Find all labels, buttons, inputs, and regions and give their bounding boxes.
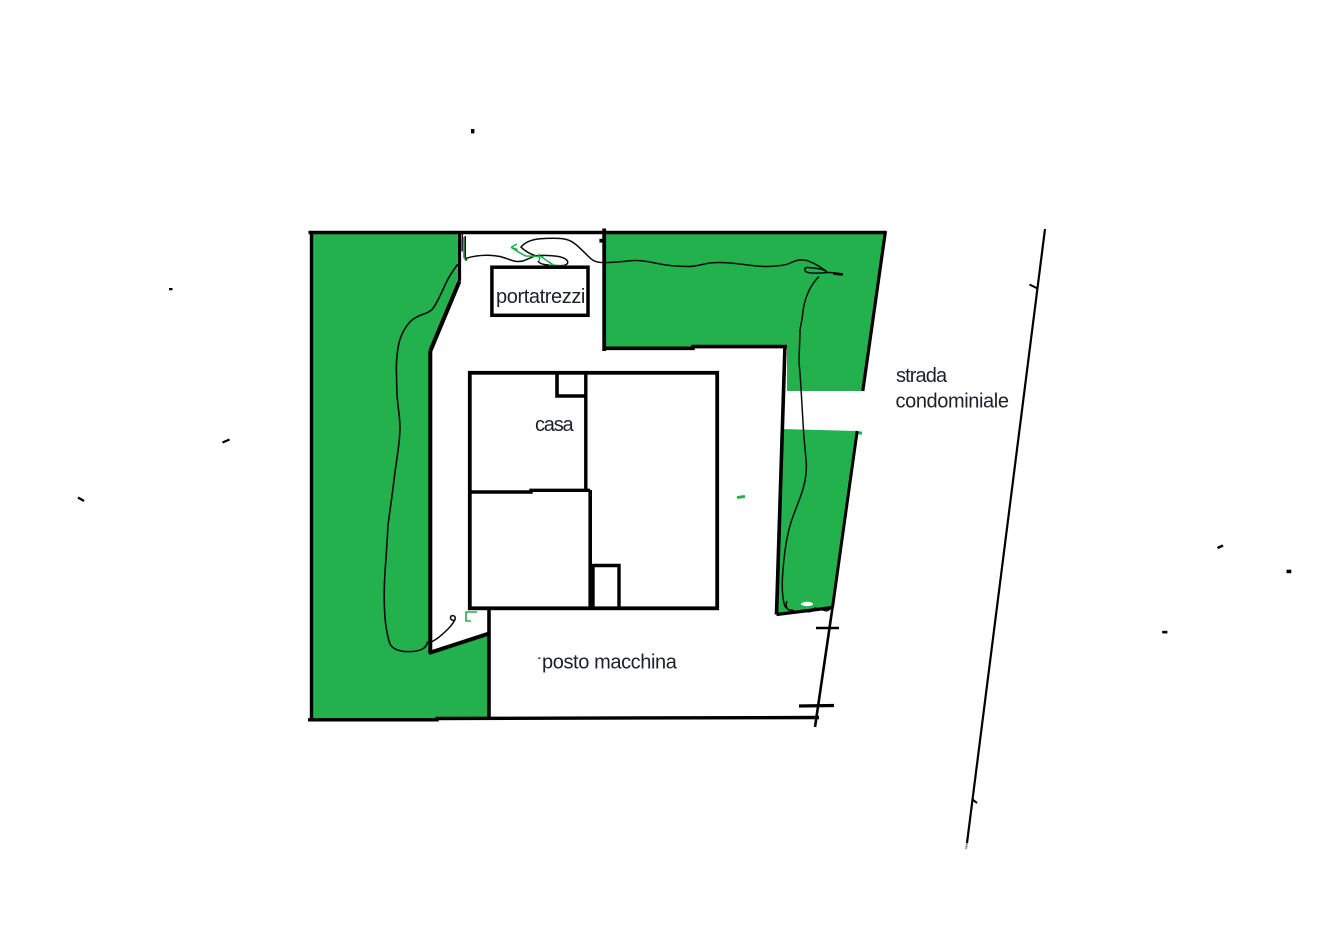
- svg-text:casa: casa: [535, 414, 575, 436]
- svg-text:portatrezzi: portatrezzi: [496, 286, 585, 308]
- svg-text:strada: strada: [896, 365, 948, 387]
- svg-text:posto macchina: posto macchina: [542, 651, 678, 673]
- svg-text:condominiale: condominiale: [896, 391, 1009, 413]
